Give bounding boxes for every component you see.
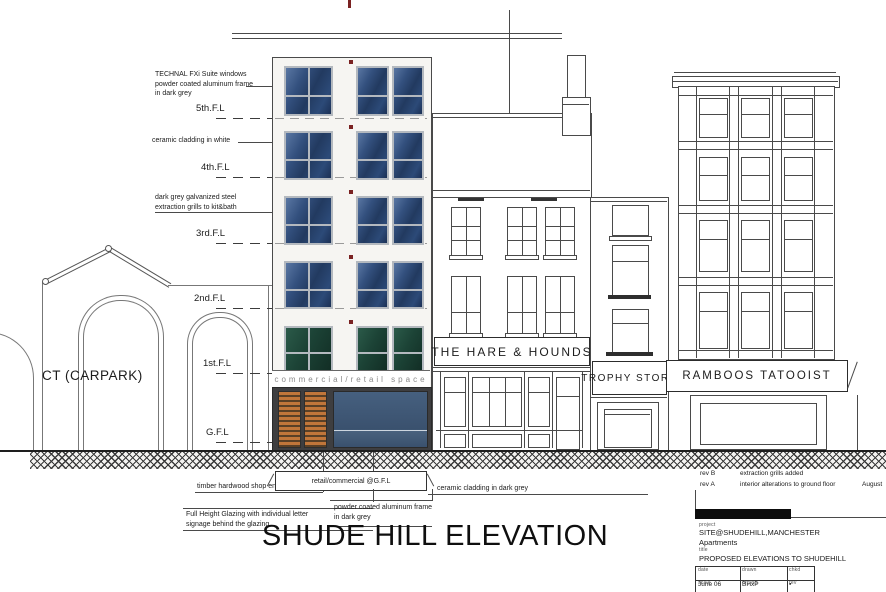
red-marker [348,0,351,8]
transom [394,352,422,354]
stall-panel [528,434,550,448]
glazing-bar [560,277,561,334]
pub-window [472,377,522,427]
title-label: title [699,548,708,553]
storefront-glazing [333,391,428,448]
note-line: in dark grey [155,89,253,99]
string-course [432,190,590,191]
sash-window [545,207,575,257]
window-sill [543,255,577,260]
transom [286,352,331,354]
glazing-line [334,430,427,431]
table-line [787,567,788,592]
transom [742,239,769,240]
cornice-top-line [674,72,836,73]
transom [785,175,812,176]
floor-label-3rd: 3rd.F.L [196,228,225,239]
drawing-title: SHUDE HILL ELEVATION [245,520,625,553]
transom [742,114,769,115]
transom [286,95,331,97]
grill-marker [349,125,353,129]
chimney-stack [567,55,586,101]
window [784,292,813,349]
rev-b-tag: rev B [700,470,715,477]
leader-line [432,489,433,501]
note-line: extraction grills to kit&bath [155,203,237,213]
dark-sill [606,352,653,356]
trophy-window [612,205,649,236]
table-line [740,567,741,592]
sash-window [507,276,537,335]
vent-slot [531,198,557,201]
carpark-arch-partial [0,332,34,451]
mullion [308,133,310,178]
rev-a-tag: rev A [700,481,715,488]
window [741,292,770,349]
spandrel-line [678,141,833,142]
fascia-line [590,397,667,398]
door-rail [557,396,579,397]
titleblock-line [791,517,886,518]
spandrel-line [678,205,833,206]
grill-marker [349,320,353,324]
window [284,326,333,372]
transom [286,159,331,161]
rear-parapet-line [232,33,562,34]
window [784,157,813,201]
note-line: TECHNAL FXi Suite windows [155,70,253,80]
glazing-bar [522,208,523,256]
window [284,261,333,309]
transom [700,175,727,176]
timber-slat-panel [278,391,301,448]
window [699,157,728,201]
project-subname: Apartments [699,538,737,547]
sash-window [507,207,537,257]
transom [529,392,549,393]
stall-panel [444,434,466,448]
spandrel-line [678,95,833,96]
floor-label-4th: 4th.F.L [201,162,230,173]
pilaster [814,86,815,358]
glazing-bar [546,312,574,313]
transom [358,289,387,291]
transom [700,239,727,240]
window [392,66,424,116]
window [392,326,424,372]
pilaster [524,371,525,448]
banner-point [427,474,434,487]
glazing-bar [466,277,467,334]
mullion [308,263,310,307]
roof-finial [42,278,49,285]
window-sill [449,255,483,260]
window [356,261,389,309]
window [392,131,424,180]
pub-door [556,377,580,450]
pilaster [738,86,739,358]
grill-marker [349,190,353,194]
leader-line [428,494,648,495]
transom [742,311,769,312]
glazing-bar [466,208,467,256]
window [741,220,770,272]
ground-line [0,450,886,452]
titleblock-table: dateJune 06 drawnBHxP chkd▪ scale1:100A3… [695,566,815,592]
vent-slot [458,198,484,201]
transom [286,224,331,226]
spandrel-line [678,149,833,150]
glazing-bar [546,226,574,227]
window [356,66,389,116]
cornice-line [672,81,838,82]
floor-label-2nd: 2nd.F.L [194,293,225,304]
leader-line [195,492,323,493]
mullion [505,378,506,426]
spandrel-line [678,350,833,351]
pilaster [696,86,697,358]
glazing-bar [508,312,536,313]
pilaster [772,86,773,358]
carpark-label: CT (CARPARK) [42,368,143,383]
window [284,131,333,180]
parapet-line [590,201,667,202]
spandrel-line [678,285,833,286]
facade-floor-line [275,118,427,119]
tattooist-sign: RAMBOOS TATOOIST [666,360,848,392]
grill-marker [349,60,353,64]
pilaster [729,86,730,358]
window [784,98,813,138]
transom [394,159,422,161]
glazing-bar [452,240,480,241]
glazing-bar [560,208,561,256]
timber-slat-panel [304,391,327,448]
window [784,220,813,272]
transom [358,95,387,97]
transom [394,95,422,97]
window [392,196,424,245]
pilaster [552,371,553,448]
trophy-sign: TROPHY STORE [592,361,667,395]
cell-label: date [698,568,721,573]
tattooist-shop-window [700,403,817,445]
fascia-line [432,371,590,372]
logo-bar [695,509,791,519]
eaves-line [168,285,272,286]
cell-label: rev [789,581,797,586]
note-box-line [330,500,432,501]
rev-a-date: August [862,481,882,488]
transom [700,114,727,115]
window [284,196,333,245]
cell-scale: scale1:100A3 [698,581,722,592]
sash-window [451,207,481,257]
sash-window [545,276,575,335]
note-line: Full Height Glazing with individual lett… [186,510,308,520]
transom [445,392,465,393]
note-line: powder coated aluminum frame [334,503,432,513]
glazing-bar [452,312,480,313]
pilaster [468,371,469,448]
cell-label: drawn [742,568,759,573]
mullion [489,378,490,426]
elevation-drawing: CT (CARPARK) 5th.F.L 4th.F.L 3rd.F.L 2nd… [0,0,886,592]
ground-hatch [30,450,886,469]
transom [286,289,331,291]
pub-sign: THE HARE & HOUNDS [434,337,590,366]
mullion [308,68,310,114]
note-line: dark grey galvanized steel [155,193,237,203]
pub-window [528,377,550,427]
sign-end-slash [847,362,858,389]
roof-finial [105,245,112,252]
note-line: powder coated aluminum frame [155,80,253,90]
glazing-bar [546,240,574,241]
rev-b-text: extraction grills added [740,470,803,477]
window-sill [609,236,652,241]
transom [394,289,422,291]
window [392,261,424,309]
floor-label-gfl: G.F.L [206,427,229,438]
transom [358,352,387,354]
project-name: SITE@SHUDEHILL,MANCHESTER [699,528,820,537]
rear-parapet-line [232,38,562,39]
chimney-band [562,104,589,105]
gable-roof-left-slope [44,247,111,284]
pub-window [444,377,466,427]
glazing-bar [522,277,523,334]
transom [785,311,812,312]
note-grills: dark grey galvanized steel extraction gr… [155,193,237,212]
transom [358,159,387,161]
leader-line [373,452,374,471]
dark-sill [608,295,651,299]
retail-band: commercial/retail space [272,370,430,388]
window [699,292,728,349]
carpark-wall-line [268,285,269,450]
rear-flue-line [509,10,510,113]
mullion [308,198,310,243]
sheet-title: PROPOSED ELEVATIONS TO SHUDEHILL [699,554,846,563]
glazing-bar [508,240,536,241]
note-ceramic-dark: ceramic cladding in dark grey [437,484,528,494]
spandrel-line [678,277,833,278]
titleblock-edge [695,490,696,509]
transom [613,323,648,324]
window [284,66,333,116]
window [741,157,770,201]
cell-label: scale [698,581,722,586]
cell-rev: revC [789,581,797,592]
transom-line [604,414,650,415]
window-sill [505,255,539,260]
cell-label: drg no [742,581,762,586]
note-technal: TECHNAL FXi Suite windows powder coated … [155,70,253,99]
transom [785,239,812,240]
transom [700,311,727,312]
stall-panel [472,434,522,448]
stall-riser-line [436,430,582,431]
transom [613,261,648,262]
adjacent-building-line [857,395,858,450]
grill-marker [349,255,353,259]
sash-window [451,276,481,335]
transom [394,224,422,226]
transom [785,114,812,115]
window [356,131,389,180]
rev-a-text: interior alterations to ground floor [740,481,835,488]
cell-label: chkd [789,568,800,573]
carpark-wall-line [42,282,43,450]
pilaster [781,86,782,358]
note-ceramic-white: ceramic cladding in white [152,136,230,146]
pilaster [440,371,441,448]
transom [742,175,769,176]
chimney [562,97,591,136]
glazing-bar [508,226,536,227]
fascia-line [432,367,590,368]
window [356,326,389,372]
window [356,196,389,245]
window [699,220,728,272]
transom [358,224,387,226]
floor-label-1st: 1st.F.L [203,358,231,369]
gable-roof-right-slope [109,247,172,287]
cell-dwg: drg no205/09 [742,581,762,592]
trophy-window [612,245,649,296]
string-course [432,197,590,198]
trophy-window [612,309,649,354]
glazing-bar [452,226,480,227]
transom [473,392,521,393]
window [699,98,728,138]
window [741,98,770,138]
mullion [308,328,310,370]
spandrel-line [678,213,833,214]
floor-label-5th: 5th.F.L [196,103,225,114]
retail-banner: retail/commercial @G.F.L [275,471,427,491]
